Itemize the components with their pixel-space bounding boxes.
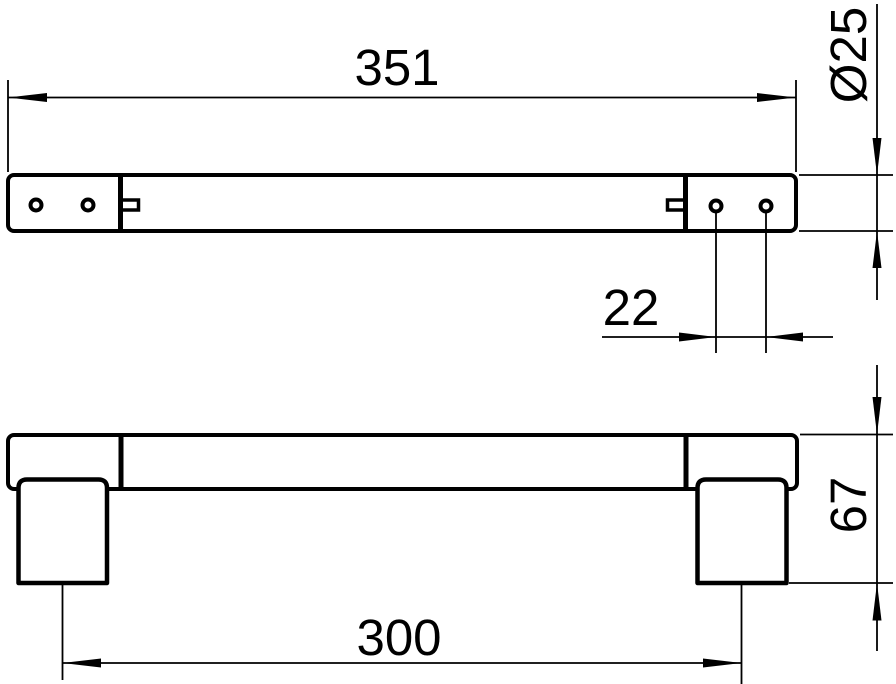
dim25-arrowhead-down <box>873 138 882 175</box>
dim351-arrowhead-left <box>8 93 47 102</box>
dimension-bar-diameter: Ø25 <box>799 4 893 300</box>
front-view-bar-outline <box>8 435 797 489</box>
dim67-arrowhead-up <box>873 583 882 621</box>
dim300-label: 300 <box>356 609 441 666</box>
dim25-arrowhead-up <box>873 231 882 268</box>
dim300-arrowhead-right <box>703 659 742 668</box>
screw-hole-right-1 <box>711 201 722 212</box>
top-view-bar-outline <box>8 175 796 231</box>
dimension-overall-length: 351 <box>8 39 796 172</box>
dim351-label: 351 <box>354 39 439 96</box>
dimension-projection: 67 <box>789 365 893 651</box>
left-mounting-post <box>19 480 108 584</box>
bar-dimension-drawing: 351 Ø25 22 <box>0 0 896 684</box>
dim67-label: 67 <box>820 477 877 534</box>
technical-drawing-canvas: 351 Ø25 22 <box>0 0 896 684</box>
dim67-arrowhead-down <box>873 397 882 435</box>
top-view <box>8 175 796 231</box>
screw-hole-left-2 <box>83 200 94 211</box>
dim22-arrowhead-right-pointing <box>679 333 716 342</box>
dim300-arrowhead-left <box>63 659 102 668</box>
dimension-hole-spacing: 22 <box>602 212 833 353</box>
dim22-label: 22 <box>603 279 660 336</box>
dimension-mounting-centers: 300 <box>63 609 742 668</box>
dim22-arrowhead-left-pointing <box>766 333 803 342</box>
right-mounting-post <box>698 480 787 584</box>
dim25-label: Ø25 <box>820 7 877 103</box>
dim351-arrowhead-right <box>757 93 796 102</box>
screw-hole-right-2 <box>761 201 772 212</box>
screw-hole-left-1 <box>31 200 42 211</box>
top-view-left-setscrew-tab <box>123 200 139 210</box>
top-view-right-setscrew-tab <box>668 200 684 210</box>
